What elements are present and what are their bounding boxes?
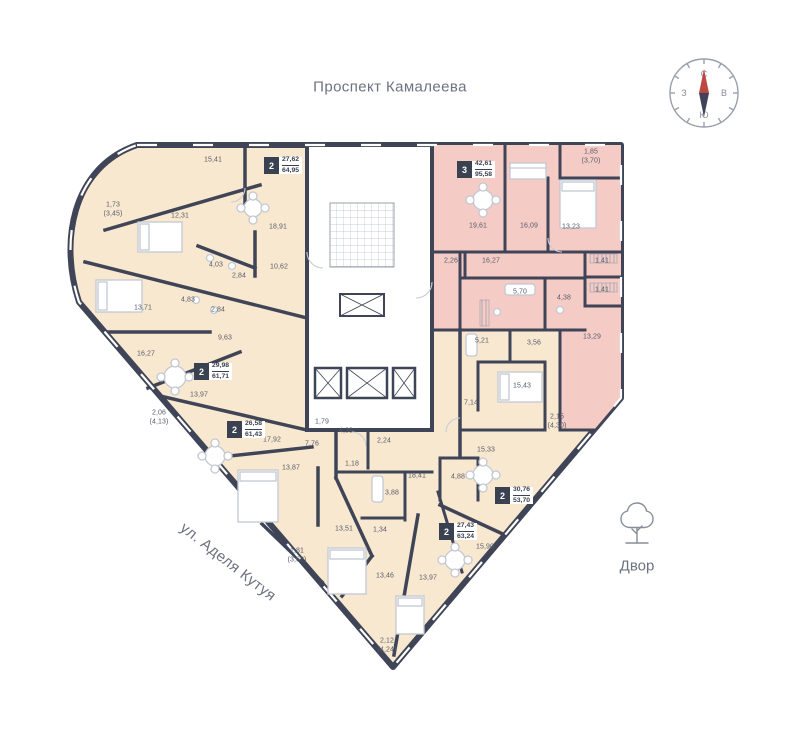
apartment-living-area: 30,76	[513, 486, 530, 495]
apartment-rooms-count: 2	[495, 487, 510, 504]
apartment-badge[interactable]: 227,4363,24	[439, 523, 477, 540]
compass-east-label: В	[721, 88, 727, 98]
apartment-total-area: 63,24	[457, 531, 474, 541]
apartment-living-area: 42,61	[475, 160, 492, 169]
sofa	[510, 163, 546, 179]
stairwell	[330, 203, 394, 267]
apartment-rooms-count: 3	[457, 161, 472, 178]
apartment-living-area: 29,98	[212, 362, 229, 371]
compass-west-label: З	[681, 88, 686, 98]
apartment-total-area: 53,70	[513, 495, 530, 505]
street-label-top: Проспект Камалеева	[313, 79, 467, 96]
apartment-living-area: 27,43	[457, 522, 474, 531]
tree-icon	[614, 498, 660, 550]
apartment-living-area: 27,62	[282, 156, 299, 165]
compass-icon: С В Ю З	[667, 56, 741, 130]
apartment-badge[interactable]: 230,7653,70	[495, 487, 533, 504]
apartment-rooms-count: 2	[227, 421, 242, 438]
apartment-total-area: 61,43	[245, 429, 262, 439]
apartment-badge[interactable]: 226,5861,43	[227, 421, 265, 438]
bed	[328, 548, 366, 594]
apartment-badge[interactable]: 229,9861,71	[194, 363, 232, 380]
bed	[96, 280, 142, 312]
bed	[498, 372, 542, 402]
apartment-rooms-count: 2	[194, 363, 209, 380]
apartment-badge[interactable]: 227,6264,95	[264, 157, 302, 174]
apartment-rooms-count: 2	[439, 523, 454, 540]
bed	[396, 596, 424, 634]
bed	[138, 222, 182, 252]
apartment-living-area: 26,58	[245, 420, 262, 429]
bed	[560, 180, 596, 228]
apartment-total-area: 61,71	[212, 371, 229, 381]
courtyard-label: Двор	[620, 558, 655, 575]
bed	[238, 470, 278, 522]
floor-plan-page: С В Ю З Проспект Камалеева ул. Аделя Кут…	[0, 0, 800, 747]
apartment-total-area: 64,95	[282, 165, 299, 175]
apartment-rooms-count: 2	[264, 157, 279, 174]
apartment-total-area: 95,58	[475, 169, 492, 179]
apartment-badge-selected[interactable]: 342,6195,58	[457, 161, 495, 178]
